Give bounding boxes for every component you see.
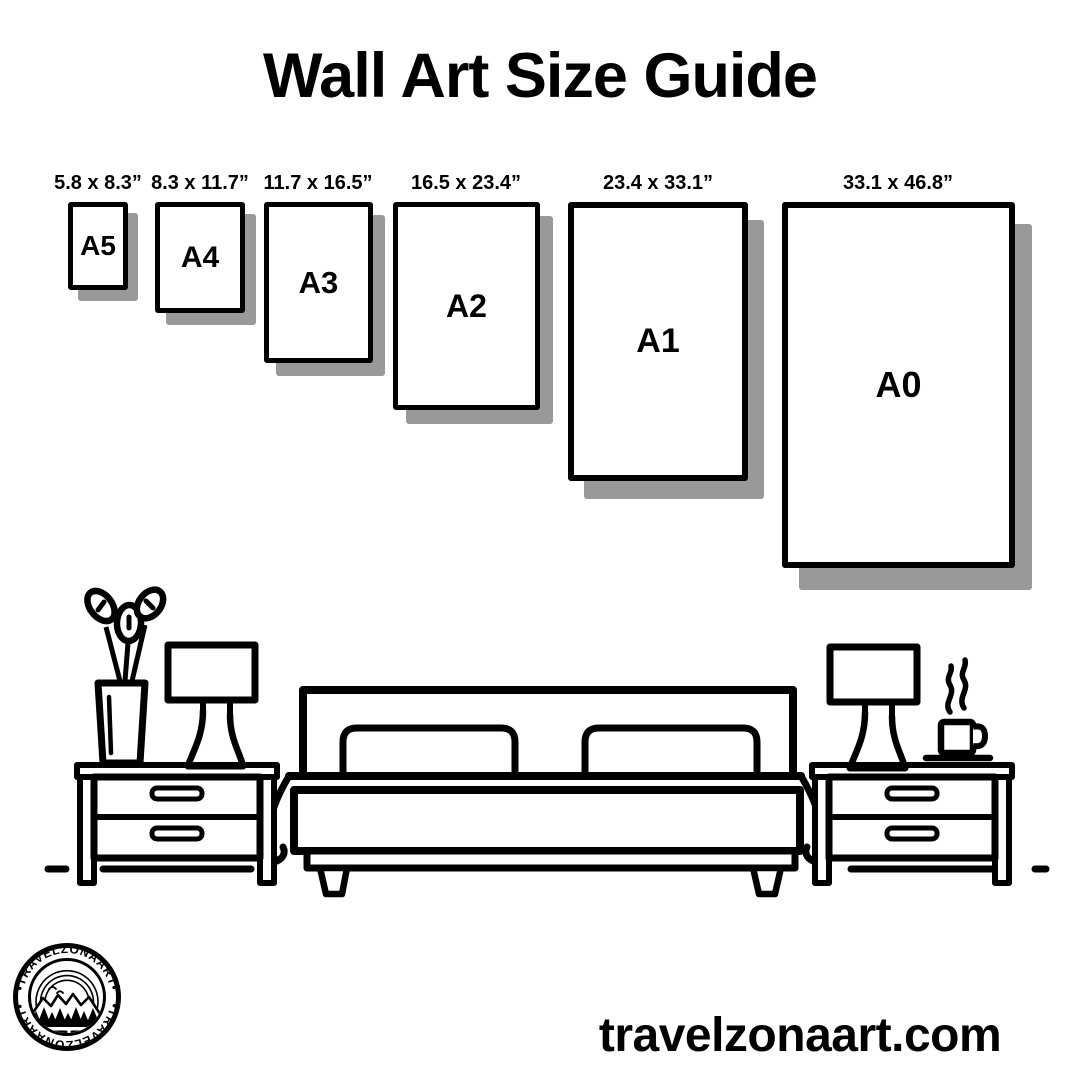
website-url: travelzonaart.com bbox=[520, 1008, 1080, 1063]
paper-a2-label: A2 bbox=[446, 288, 487, 325]
bed-leg-right bbox=[753, 868, 781, 894]
paper-a0-label: A0 bbox=[875, 364, 921, 406]
steam-icon bbox=[948, 666, 952, 712]
wall-art-size-guide-poster: Wall Art Size Guide 5.8 x 8.3” 8.3 x 11.… bbox=[0, 0, 1080, 1080]
duvet bbox=[294, 790, 800, 851]
paper-a1-dimensions: 23.4 x 33.1” bbox=[603, 172, 713, 195]
double-bed-icon bbox=[269, 690, 821, 894]
paper-a4-label: A4 bbox=[181, 241, 219, 275]
bed-leg-left bbox=[320, 868, 347, 894]
paper-a3: A3 bbox=[264, 202, 373, 363]
vase bbox=[98, 683, 145, 763]
page-title: Wall Art Size Guide bbox=[0, 40, 1080, 112]
table-lamp-left-icon bbox=[168, 645, 255, 766]
paper-a3-dimensions: 11.7 x 16.5” bbox=[264, 172, 373, 195]
paper-a4-dimensions: 8.3 x 11.7” bbox=[151, 172, 249, 195]
steam-icon bbox=[962, 660, 966, 708]
brand-logo: •TRAVELZONAART• •TRAVELZONAART• bbox=[8, 938, 126, 1056]
paper-a1: A1 bbox=[568, 202, 748, 481]
paper-a2-dimensions: 16.5 x 23.4” bbox=[411, 172, 521, 195]
paper-a5: A5 bbox=[68, 202, 128, 290]
paper-a3-label: A3 bbox=[299, 265, 339, 301]
bedroom-illustration bbox=[40, 585, 1050, 900]
paper-a2: A2 bbox=[393, 202, 540, 410]
potted-plant-icon bbox=[82, 585, 169, 763]
paper-a5-label: A5 bbox=[80, 230, 116, 262]
paper-a4: A4 bbox=[155, 202, 245, 313]
paper-a0-dimensions: 33.1 x 46.8” bbox=[843, 172, 953, 195]
pillow-left-icon bbox=[343, 728, 515, 776]
paper-a5-dimensions: 5.8 x 8.3” bbox=[54, 172, 142, 195]
paper-a0: A0 bbox=[782, 202, 1015, 568]
pillow-right-icon bbox=[585, 728, 757, 776]
nightstand-left-icon bbox=[77, 765, 277, 883]
paper-a1-label: A1 bbox=[636, 322, 679, 361]
nightstand-right-icon bbox=[812, 765, 1012, 883]
bed-base bbox=[307, 851, 795, 868]
table-lamp-right-icon bbox=[830, 647, 917, 768]
coffee-cup-icon bbox=[926, 660, 990, 758]
